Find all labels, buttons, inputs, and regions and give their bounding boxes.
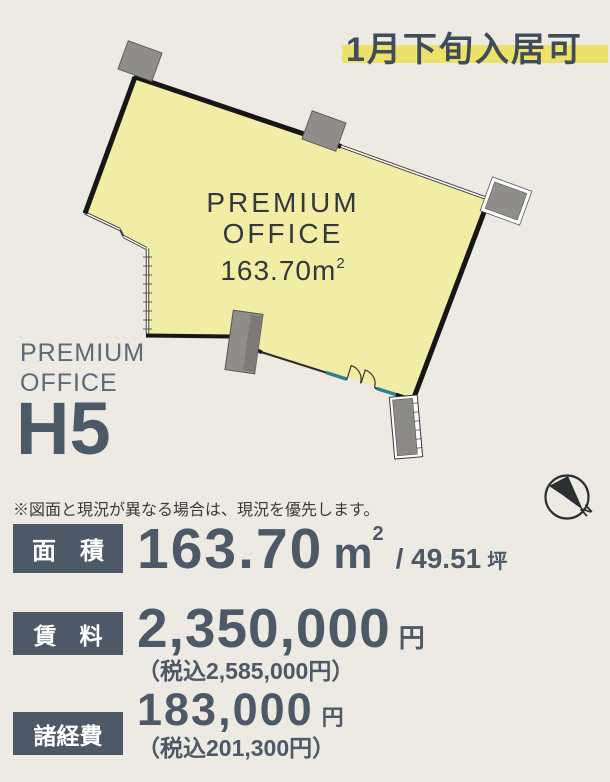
compass: N: [536, 466, 600, 530]
area-label: 面 積: [13, 524, 123, 573]
area-value: 163.70: [137, 521, 323, 578]
area-tsubo-value: / 49.51: [396, 545, 482, 573]
move-in-banner: 1月下旬入居可: [346, 22, 583, 71]
expenses-unit: 円: [322, 707, 344, 729]
pillar-top-left: [118, 41, 162, 82]
expenses-value-row: 183,000 円: [137, 687, 344, 732]
rent-value: 2,350,000: [137, 601, 391, 656]
area-value-row: 163.70 m2 / 49.51 坪: [137, 521, 507, 578]
rent-label: 賃 料: [13, 612, 123, 655]
room-name-line1: PREMIUM: [206, 187, 359, 218]
area-tsubo-unit: 坪: [487, 552, 507, 572]
expenses-tax-note: （税込201,300円）: [137, 729, 335, 763]
expenses-value: 183,000: [137, 687, 314, 732]
room-area-label: 163.70m2: [220, 255, 345, 286]
shaft-bottom-right: [389, 395, 422, 459]
rent-unit: 円: [399, 625, 425, 651]
area-unit: m2: [333, 532, 383, 576]
rent-tax-note: （税込2,585,000円）: [137, 652, 354, 686]
rent-value-row: 2,350,000 円: [137, 601, 425, 656]
pillar-right: [480, 177, 532, 225]
expenses-label: 諸経費: [13, 712, 123, 755]
unit-brand-line1: PREMIUM: [20, 338, 145, 368]
flyer-page: 1月下旬入居可: [0, 0, 610, 782]
room-name-line2: OFFICE: [223, 218, 344, 249]
unit-name: H5: [16, 392, 111, 466]
